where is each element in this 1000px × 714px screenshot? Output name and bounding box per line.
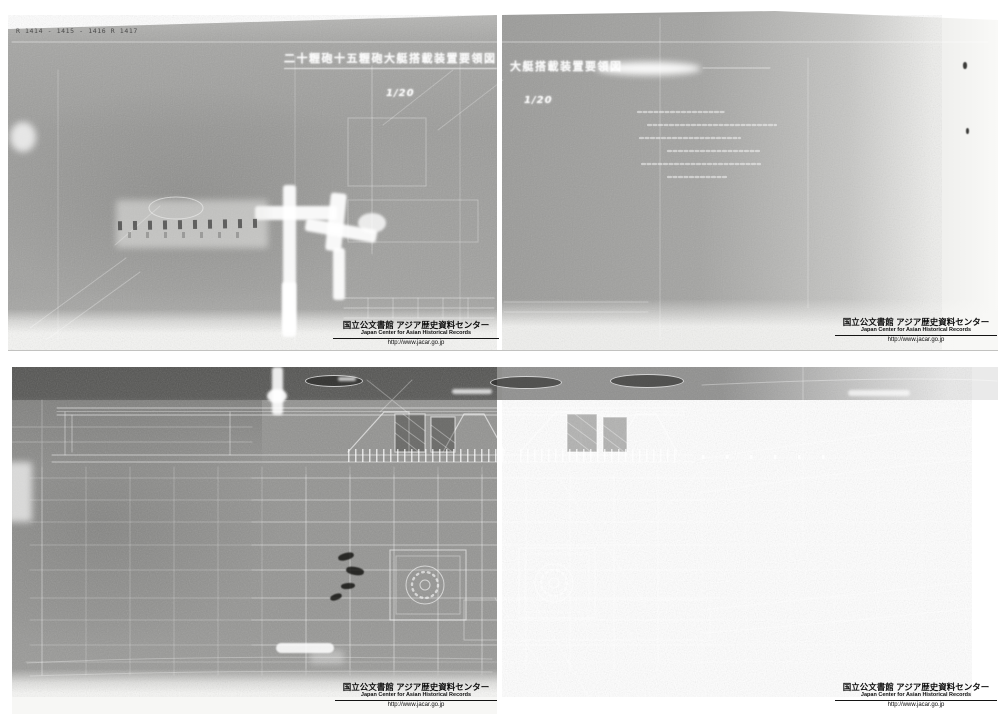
davit-post-flare xyxy=(282,282,296,337)
ink-speck xyxy=(966,128,969,134)
jacar-watermark: 国立公文書館 アジア歴史資料センター Japan Center for Asia… xyxy=(832,318,1000,343)
boat-highlight xyxy=(848,390,910,396)
boat-silhouette xyxy=(490,376,562,389)
highlight-blob xyxy=(267,389,287,403)
watermark-jp: 国立公文書館 アジア歴史資料センター xyxy=(332,683,500,692)
ink-speck xyxy=(963,62,967,69)
top-sheet: R 1414 - 1415 - 1416 R 1417 二十糎砲十五糎砲大艇搭載… xyxy=(8,10,998,351)
edge-flare xyxy=(10,122,36,152)
bottom-sheet-linework xyxy=(12,367,998,714)
watermark-url: http://www.jacar.go.jp xyxy=(832,337,1000,344)
watermark-jp: 国立公文書館 アジア歴史資料センター xyxy=(330,321,502,330)
watermark-jp: 国立公文書館 アジア歴史資料センター xyxy=(832,683,1000,692)
boat-highlight xyxy=(338,377,356,381)
dark-tick-row xyxy=(128,232,248,238)
watermark-en: Japan Center for Asian Historical Record… xyxy=(335,692,497,701)
watermark-url: http://www.jacar.go.jp xyxy=(832,702,1000,709)
jacar-watermark: 国立公文書館 アジア歴史資料センター Japan Center for Asia… xyxy=(332,683,500,708)
highlight-blob xyxy=(358,213,386,233)
bottom-sheet: 国立公文書館 アジア歴史資料センター Japan Center for Asia… xyxy=(12,367,998,714)
top-sheet-linework xyxy=(8,10,998,350)
jacar-watermark: 国立公文書館 アジア歴史資料センター Japan Center for Asia… xyxy=(832,683,1000,708)
watermark-en: Japan Center for Asian Historical Record… xyxy=(835,692,997,701)
boat-silhouette xyxy=(610,374,684,388)
watermark-url: http://www.jacar.go.jp xyxy=(330,340,502,347)
scale-label: 1/20 xyxy=(386,88,415,99)
drawing-title: 二十糎砲十五糎砲大艇搭載装置要領図 xyxy=(284,50,497,69)
rivet-dot-row xyxy=(702,455,837,459)
scale-label: 1/20 xyxy=(524,95,553,106)
watermark-en: Japan Center for Asian Historical Record… xyxy=(333,330,499,339)
edge-flare xyxy=(6,462,32,522)
watermark-en: Japan Center for Asian Historical Record… xyxy=(835,327,997,336)
corner-reference: R 1414 - 1415 - 1416 R 1417 xyxy=(16,27,138,35)
highlight-blob xyxy=(310,650,344,664)
tick-comb xyxy=(520,449,676,462)
tick-comb xyxy=(348,449,504,462)
watermark-jp: 国立公文書館 アジア歴史資料センター xyxy=(832,318,1000,327)
jacar-watermark: 国立公文書館 アジア歴史資料センター Japan Center for Asia… xyxy=(330,321,502,346)
watermark-url: http://www.jacar.go.jp xyxy=(332,702,500,709)
davit-post-flare xyxy=(333,248,345,300)
boat-highlight xyxy=(452,389,492,394)
drawing-title-fragment: 大艇搭載装置要領図 xyxy=(510,58,623,76)
